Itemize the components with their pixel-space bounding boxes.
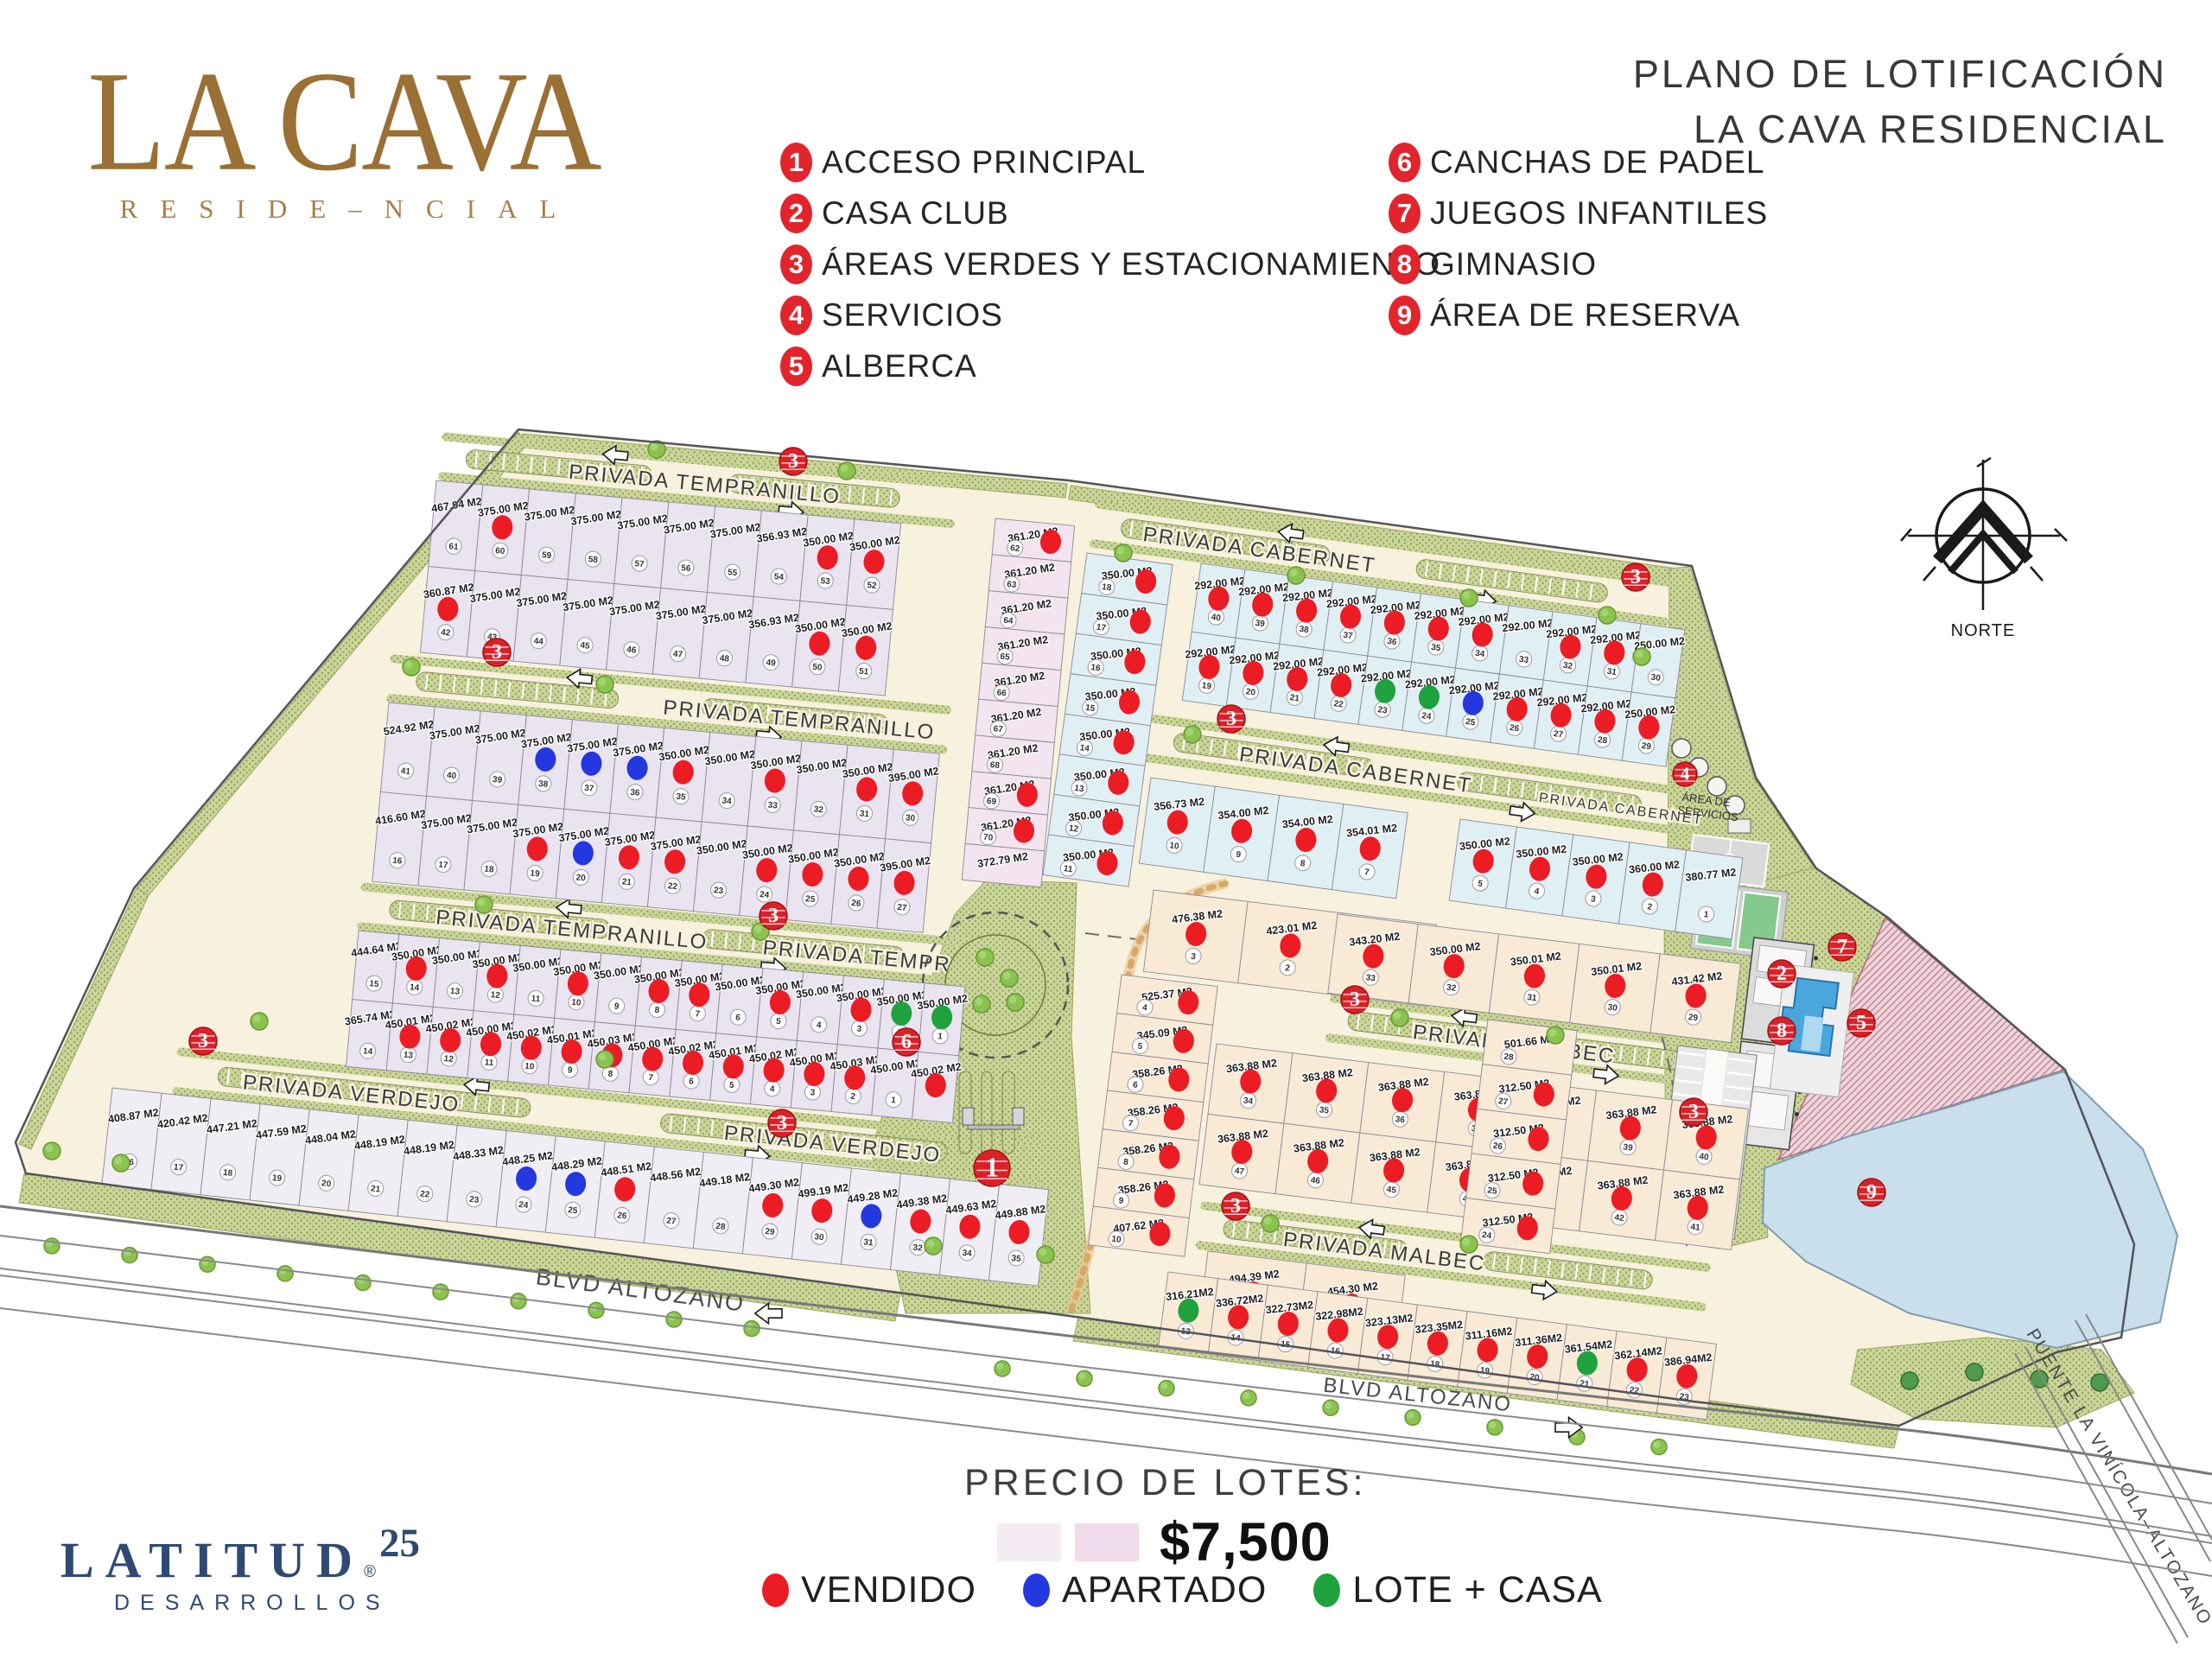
lot bbox=[702, 732, 756, 825]
legend-label-8: GIMNASIO bbox=[1430, 246, 1597, 283]
lot-number: 49 bbox=[766, 658, 777, 669]
lot-number: 25 bbox=[568, 1205, 579, 1216]
plano-lotificacion: PRIVADA TEMPRANILLOPRIVADA TEMPRANILLOPR… bbox=[0, 0, 2212, 1659]
status-label: LOTE + CASA bbox=[1352, 1569, 1602, 1611]
lot-number: 41 bbox=[1690, 1223, 1701, 1233]
lot-number: 10 bbox=[1169, 841, 1180, 851]
lot-number: 31 bbox=[859, 809, 870, 819]
lot-number: 42 bbox=[441, 628, 452, 639]
lot-number: 13 bbox=[1074, 784, 1085, 794]
developer-name: LATITUD bbox=[60, 1532, 364, 1588]
map-marker-3: 3 bbox=[760, 902, 787, 930]
status-item-lote-casa: LOTE + CASA bbox=[1313, 1569, 1602, 1611]
lot-number: 19 bbox=[271, 1173, 283, 1184]
entrance-gate bbox=[968, 1125, 1020, 1129]
lot-number: 19 bbox=[1479, 1366, 1491, 1376]
svg-text:3: 3 bbox=[198, 1030, 208, 1052]
lot-number: 16 bbox=[1090, 663, 1102, 673]
lot-number: 27 bbox=[897, 903, 908, 913]
palm-tree-icon bbox=[1966, 1363, 1983, 1381]
legend-label-5: ALBERCA bbox=[822, 348, 977, 385]
lot-number: 12 bbox=[443, 1054, 454, 1065]
lot-number: 32 bbox=[813, 804, 824, 815]
svg-text:4: 4 bbox=[1681, 763, 1690, 784]
lot-number: 22 bbox=[1333, 699, 1344, 709]
lot-number: 20 bbox=[1529, 1372, 1541, 1382]
lot-number: 34 bbox=[962, 1249, 973, 1259]
lot-number: 30 bbox=[1650, 673, 1662, 683]
map-marker-3: 3 bbox=[1622, 563, 1649, 591]
svg-text:3: 3 bbox=[492, 641, 502, 664]
lot-number: 39 bbox=[493, 775, 504, 785]
lot-number: 31 bbox=[863, 1237, 874, 1248]
lot-number: 48 bbox=[719, 654, 730, 664]
price-block: PRECIO DE LOTES: $7,500 bbox=[964, 1462, 1366, 1573]
lot-number: 11 bbox=[1063, 864, 1073, 874]
lot-number: 60 bbox=[495, 546, 506, 556]
map-marker-3: 3 bbox=[768, 1109, 796, 1137]
lot bbox=[661, 502, 715, 593]
palm-tree-icon bbox=[1901, 1372, 1918, 1389]
lot-number: 17 bbox=[1096, 623, 1107, 633]
lot-number: 54 bbox=[773, 572, 785, 582]
lot-number: 65 bbox=[1000, 652, 1011, 663]
lot-number: 61 bbox=[448, 542, 460, 552]
lot-number: 36 bbox=[1387, 637, 1398, 647]
lot-number: 29 bbox=[1641, 741, 1652, 752]
lot-number: 45 bbox=[1386, 1185, 1397, 1195]
guard-booth bbox=[1013, 1108, 1024, 1125]
svg-text:6: 6 bbox=[901, 1031, 912, 1053]
map-marker-3: 3 bbox=[483, 639, 511, 666]
svg-text:1: 1 bbox=[985, 1152, 999, 1182]
map-marker-3: 3 bbox=[1680, 1098, 1707, 1126]
lot-number: 35 bbox=[676, 792, 687, 803]
lot bbox=[614, 498, 669, 588]
legend-badge-8: 8 bbox=[1389, 245, 1421, 284]
legend-label-3: ÁREAS VERDES Y ESTACIONAMIENTO bbox=[822, 246, 1440, 283]
lot-number: 39 bbox=[1255, 619, 1266, 629]
lot-number: 31 bbox=[1527, 993, 1538, 1003]
lot-number: 22 bbox=[420, 1190, 431, 1200]
lot-number: 28 bbox=[1597, 735, 1608, 746]
lot-number: 23 bbox=[713, 886, 724, 896]
legend-item-2: 2CASA CLUB bbox=[780, 188, 1440, 238]
lot-number: 20 bbox=[575, 873, 587, 883]
lot-number: 35 bbox=[1011, 1254, 1022, 1264]
lot-number: 24 bbox=[1481, 1230, 1492, 1241]
lot bbox=[568, 493, 622, 584]
lot-number: 30 bbox=[814, 1232, 825, 1243]
lot-number: 17 bbox=[173, 1163, 184, 1173]
legend-label-9: ÁREA DE RESERVA bbox=[1430, 297, 1740, 334]
lot-number: 63 bbox=[1007, 580, 1018, 590]
lot-number: 10 bbox=[524, 1062, 536, 1072]
lot-number: 26 bbox=[851, 899, 862, 909]
legend-item-3: 3ÁREAS VERDES Y ESTACIONAMIENTO bbox=[780, 238, 1440, 289]
lot-number: 23 bbox=[1377, 705, 1389, 715]
lot-color-swatch-1 bbox=[997, 1523, 1061, 1561]
lot-number: 67 bbox=[993, 724, 1004, 734]
svg-text:3: 3 bbox=[788, 450, 798, 473]
lot-number: 18 bbox=[222, 1168, 233, 1179]
lot-number: 34 bbox=[1243, 1096, 1254, 1106]
lot-number: 69 bbox=[986, 797, 997, 807]
lot bbox=[372, 792, 427, 886]
map-marker-3: 3 bbox=[1217, 705, 1245, 733]
lot-number: 29 bbox=[1688, 1013, 1699, 1023]
lot-number: 22 bbox=[667, 881, 678, 892]
lot-color-swatch-2 bbox=[1075, 1523, 1139, 1561]
lot-number: 11 bbox=[484, 1058, 494, 1068]
lot-number: 46 bbox=[626, 645, 638, 656]
lot-number: 66 bbox=[996, 688, 1007, 698]
status-item-apartado: APARTADO bbox=[1023, 1569, 1267, 1611]
logo-wordmark: LA CAVA bbox=[74, 50, 613, 194]
legend-left-column: 1ACCESO PRINCIPAL2CASA CLUB3ÁREAS VERDES… bbox=[780, 137, 1440, 391]
lot-number: 37 bbox=[584, 784, 595, 794]
lot bbox=[746, 596, 800, 687]
map-marker-9: 9 bbox=[1858, 1179, 1885, 1206]
lot-number: 29 bbox=[765, 1227, 776, 1237]
legend-right-column: 6CANCHAS DE PADEL7JUEGOS INFANTILES8GIMN… bbox=[1389, 137, 1768, 340]
status-item-vendido: VENDIDO bbox=[762, 1569, 976, 1611]
legend-label-7: JUEGOS INFANTILES bbox=[1430, 195, 1768, 232]
svg-text:3: 3 bbox=[1226, 708, 1236, 730]
lot-number: 38 bbox=[538, 779, 550, 790]
svg-text:3: 3 bbox=[1350, 988, 1360, 1011]
lot-number: 44 bbox=[533, 637, 544, 647]
legend-badge-3: 3 bbox=[780, 245, 812, 284]
lot-number: 14 bbox=[1079, 743, 1090, 753]
lot bbox=[418, 796, 473, 889]
lot-number: 26 bbox=[1492, 1141, 1503, 1152]
lot-number: 25 bbox=[1465, 717, 1476, 728]
registered-mark: ® bbox=[364, 1563, 376, 1581]
svg-text:8: 8 bbox=[1777, 1020, 1787, 1042]
lot-number: 32 bbox=[1562, 661, 1573, 671]
lot-number: 36 bbox=[1395, 1115, 1406, 1125]
svg-text:3: 3 bbox=[1630, 566, 1641, 588]
lot-number: 32 bbox=[912, 1243, 924, 1254]
legend-item-6: 6CANCHAS DE PADEL bbox=[1389, 137, 1768, 188]
lot-number: 40 bbox=[1211, 613, 1222, 623]
legend-badge-2: 2 bbox=[780, 194, 812, 233]
lot bbox=[380, 702, 435, 796]
map-marker-4: 4 bbox=[1673, 762, 1697, 786]
legend-item-9: 9ÁREA DE RESERVA bbox=[1389, 289, 1768, 340]
lot-number: 12 bbox=[490, 990, 501, 1001]
lot-number: 70 bbox=[983, 833, 995, 843]
svg-text:3: 3 bbox=[777, 1112, 787, 1135]
status-dot-icon bbox=[762, 1573, 789, 1607]
la-cava-logo: LA CAVA RESIDE–NCIAL bbox=[74, 50, 613, 225]
lot bbox=[793, 741, 848, 834]
svg-text:5: 5 bbox=[1856, 1012, 1866, 1034]
lot bbox=[694, 822, 748, 915]
lot-number: 33 bbox=[1518, 655, 1529, 665]
lot-number: 38 bbox=[1299, 625, 1310, 635]
lot bbox=[1675, 850, 1743, 939]
map-marker-6: 6 bbox=[893, 1028, 920, 1056]
lot-number: 24 bbox=[518, 1200, 530, 1211]
map-marker-3: 3 bbox=[189, 1027, 217, 1055]
lot bbox=[521, 489, 575, 580]
legend-badge-1: 1 bbox=[780, 143, 812, 182]
legend-badge-5: 5 bbox=[780, 346, 812, 386]
lot bbox=[753, 511, 808, 601]
lot-number: 14 bbox=[410, 982, 421, 993]
lot-number: 10 bbox=[571, 998, 582, 1008]
lot-number: 30 bbox=[1607, 1003, 1618, 1014]
map-marker-5: 5 bbox=[1847, 1009, 1875, 1037]
lot-number: 32 bbox=[1446, 983, 1457, 994]
lot-number: 53 bbox=[820, 576, 831, 587]
lot-number: 35 bbox=[1319, 1105, 1330, 1116]
lot-number: 24 bbox=[760, 890, 771, 900]
lot-number: 20 bbox=[1245, 687, 1256, 697]
lot-number: 59 bbox=[541, 550, 552, 561]
lot-number: 18 bbox=[484, 865, 495, 875]
lot-number: 34 bbox=[1474, 649, 1485, 659]
map-marker-3: 3 bbox=[1341, 986, 1369, 1014]
lot bbox=[426, 707, 480, 800]
latitud-logo: LATITUD®25 DESARROLLOS bbox=[60, 1531, 416, 1616]
lot bbox=[652, 588, 707, 679]
legend-item-5: 5ALBERCA bbox=[780, 340, 1440, 391]
status-label: VENDIDO bbox=[801, 1569, 976, 1611]
lot-number: 26 bbox=[1509, 723, 1520, 734]
svg-text:3: 3 bbox=[1230, 1195, 1241, 1217]
lot-number: 55 bbox=[728, 568, 739, 578]
lot-number: 27 bbox=[1553, 729, 1564, 740]
map-marker-1: 1 bbox=[974, 1150, 1010, 1186]
lot-number: 36 bbox=[630, 788, 641, 798]
svg-text:3: 3 bbox=[1688, 1101, 1699, 1123]
lot-number: 46 bbox=[1310, 1176, 1321, 1186]
lot-number: 64 bbox=[1003, 616, 1014, 626]
lot-number: 25 bbox=[1487, 1185, 1498, 1196]
lot-number: 50 bbox=[812, 663, 823, 673]
title-line1: PLANO DE LOTIFICACIÓN bbox=[1633, 47, 2167, 102]
lot-number: 34 bbox=[721, 797, 733, 807]
legend-label-2: CASA CLUB bbox=[822, 195, 1009, 232]
map-marker-3: 3 bbox=[779, 448, 807, 475]
lot-number: 20 bbox=[321, 1179, 332, 1189]
lot-number: 21 bbox=[370, 1184, 381, 1194]
lot-number: 11 bbox=[531, 995, 541, 1005]
lot-number: 51 bbox=[859, 667, 870, 677]
lot-number: 27 bbox=[666, 1217, 677, 1227]
status-legend: VENDIDOAPARTADOLOTE + CASA bbox=[762, 1569, 1603, 1611]
lot bbox=[560, 580, 614, 671]
lot-number: 13 bbox=[403, 1051, 414, 1061]
lot-number: 56 bbox=[681, 563, 692, 574]
svg-text:3: 3 bbox=[768, 905, 779, 927]
north-compass: NORTE bbox=[1901, 458, 2067, 640]
lot-number: 10 bbox=[1111, 1235, 1122, 1245]
svg-text:7: 7 bbox=[1837, 936, 1847, 958]
lot-number: 30 bbox=[905, 813, 916, 823]
legend-label-6: CANCHAS DE PADEL bbox=[1430, 144, 1764, 181]
lot-number: 12 bbox=[1068, 823, 1079, 834]
lot-number: 16 bbox=[392, 856, 404, 867]
lot-number: 28 bbox=[1503, 1052, 1515, 1063]
lot-number: 19 bbox=[1201, 681, 1212, 691]
lot-number: 47 bbox=[1234, 1166, 1245, 1177]
guard-booth bbox=[963, 1108, 974, 1125]
north-label: NORTE bbox=[1951, 621, 2016, 640]
lot bbox=[607, 584, 661, 675]
lot-number: 52 bbox=[867, 581, 878, 591]
lot-number: 40 bbox=[1699, 1152, 1710, 1162]
lot bbox=[707, 506, 761, 597]
legend-item-1: 1ACCESO PRINCIPAL bbox=[780, 137, 1440, 188]
lot bbox=[473, 711, 527, 804]
lot-number: 37 bbox=[1343, 631, 1354, 641]
lot bbox=[699, 593, 753, 683]
lot-number: 41 bbox=[400, 766, 411, 777]
lot-number: 23 bbox=[469, 1195, 480, 1205]
lot-number: 40 bbox=[446, 771, 457, 781]
legend-badge-9: 9 bbox=[1389, 296, 1421, 335]
lot-number: 26 bbox=[617, 1211, 628, 1221]
lot-number: 15 bbox=[369, 979, 380, 989]
lot-number: 28 bbox=[715, 1222, 727, 1232]
svg-text:9: 9 bbox=[1866, 1181, 1877, 1204]
lot-number: 14 bbox=[363, 1046, 374, 1057]
lot-number: 45 bbox=[580, 641, 591, 652]
lot-number: 24 bbox=[1421, 711, 1433, 721]
map-marker-7: 7 bbox=[1828, 933, 1856, 961]
lot bbox=[513, 575, 568, 666]
lot-number: 62 bbox=[1010, 543, 1021, 554]
lot-number: 15 bbox=[1084, 703, 1096, 714]
lot-number: 21 bbox=[621, 877, 632, 887]
lot-number: 25 bbox=[805, 894, 817, 905]
status-dot-icon bbox=[1313, 1573, 1340, 1607]
map-marker-3: 3 bbox=[1222, 1192, 1249, 1220]
price-value: $7,500 bbox=[1160, 1511, 1332, 1573]
legend-item-4: 4SERVICIOS bbox=[780, 289, 1440, 340]
developer-25: 25 bbox=[379, 1521, 420, 1566]
price-label: PRECIO DE LOTES: bbox=[964, 1462, 1366, 1504]
lot-number: 31 bbox=[1606, 667, 1618, 677]
legend-label-4: SERVICIOS bbox=[822, 297, 1003, 334]
developer-subtitle: DESARROLLOS bbox=[60, 1591, 416, 1616]
legend-badge-6: 6 bbox=[1389, 143, 1421, 182]
legend-badge-7: 7 bbox=[1389, 194, 1421, 233]
lot-number: 33 bbox=[767, 801, 779, 811]
status-dot-icon bbox=[1023, 1573, 1050, 1607]
svg-text:2: 2 bbox=[1777, 963, 1787, 985]
map-marker-8: 8 bbox=[1768, 1017, 1796, 1045]
lot-number: 19 bbox=[530, 868, 541, 879]
lot-number: 13 bbox=[449, 987, 461, 997]
lot-number: 57 bbox=[634, 559, 645, 569]
lot-number: 18 bbox=[1102, 582, 1113, 593]
lot-number: 42 bbox=[1614, 1213, 1625, 1224]
status-label: APARTADO bbox=[1062, 1569, 1267, 1611]
legend-label-1: ACCESO PRINCIPAL bbox=[822, 144, 1146, 181]
lot-number: 68 bbox=[989, 760, 1001, 771]
legend-item-7: 7JUEGOS INFANTILES bbox=[1389, 188, 1768, 238]
lot-number: 58 bbox=[588, 555, 599, 565]
legend-item-8: 8GIMNASIO bbox=[1389, 238, 1768, 289]
legend-badge-4: 4 bbox=[780, 296, 812, 335]
lot-number: 21 bbox=[1289, 693, 1300, 703]
lot-number: 47 bbox=[673, 650, 684, 660]
lot bbox=[464, 800, 518, 893]
map-marker-2: 2 bbox=[1768, 960, 1796, 988]
lot-number: 39 bbox=[1623, 1142, 1634, 1153]
lot-number: 27 bbox=[1497, 1096, 1509, 1107]
water-tank bbox=[1672, 739, 1691, 758]
palm-tree-icon bbox=[2091, 1374, 2108, 1391]
lot-number: 17 bbox=[438, 861, 449, 871]
lot-number: 33 bbox=[1365, 973, 1376, 983]
lot-number: 35 bbox=[1430, 643, 1441, 653]
